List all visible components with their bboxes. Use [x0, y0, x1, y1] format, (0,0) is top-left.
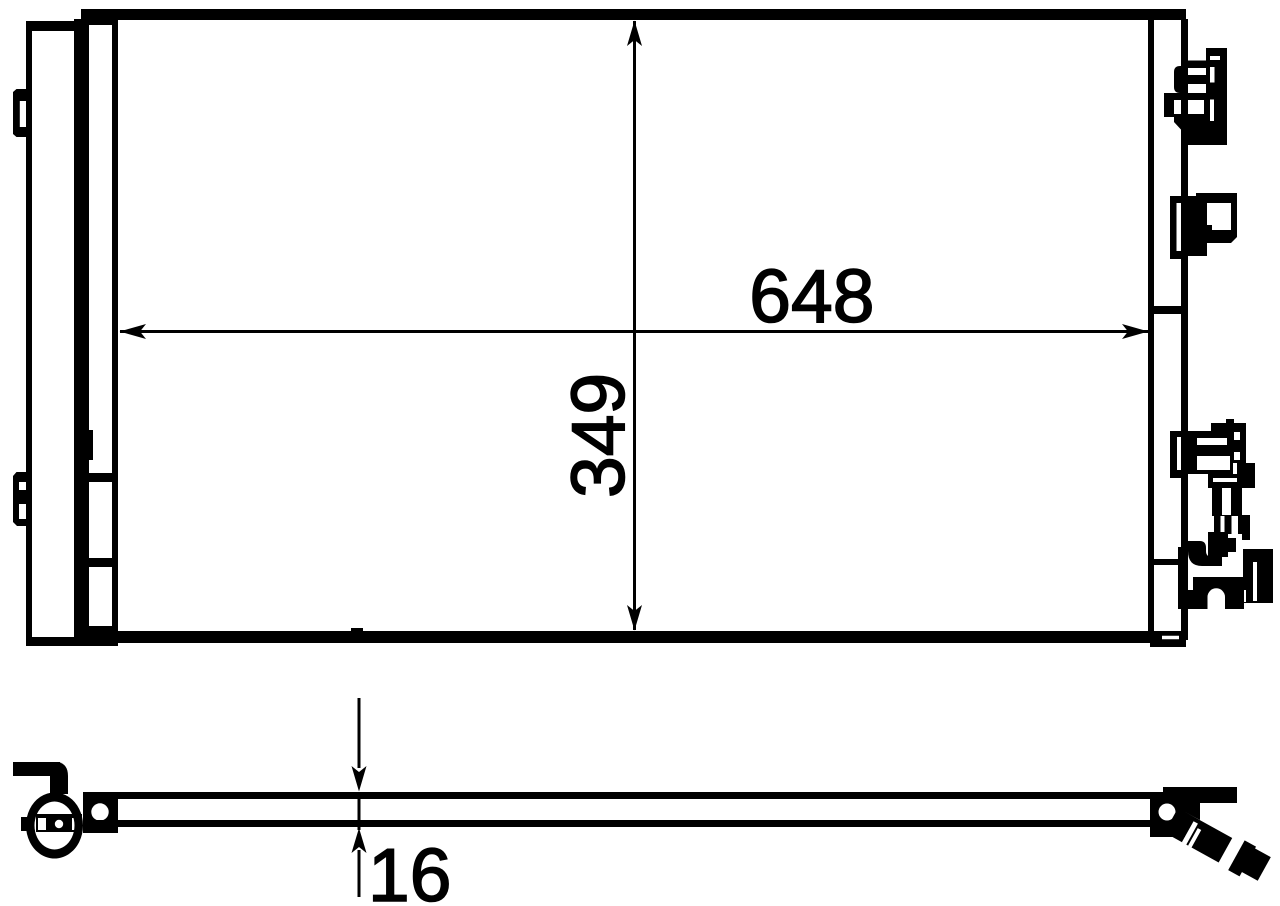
svg-text:648: 648 [749, 254, 874, 338]
svg-text:16: 16 [368, 833, 451, 906]
svg-text:349: 349 [556, 373, 640, 498]
